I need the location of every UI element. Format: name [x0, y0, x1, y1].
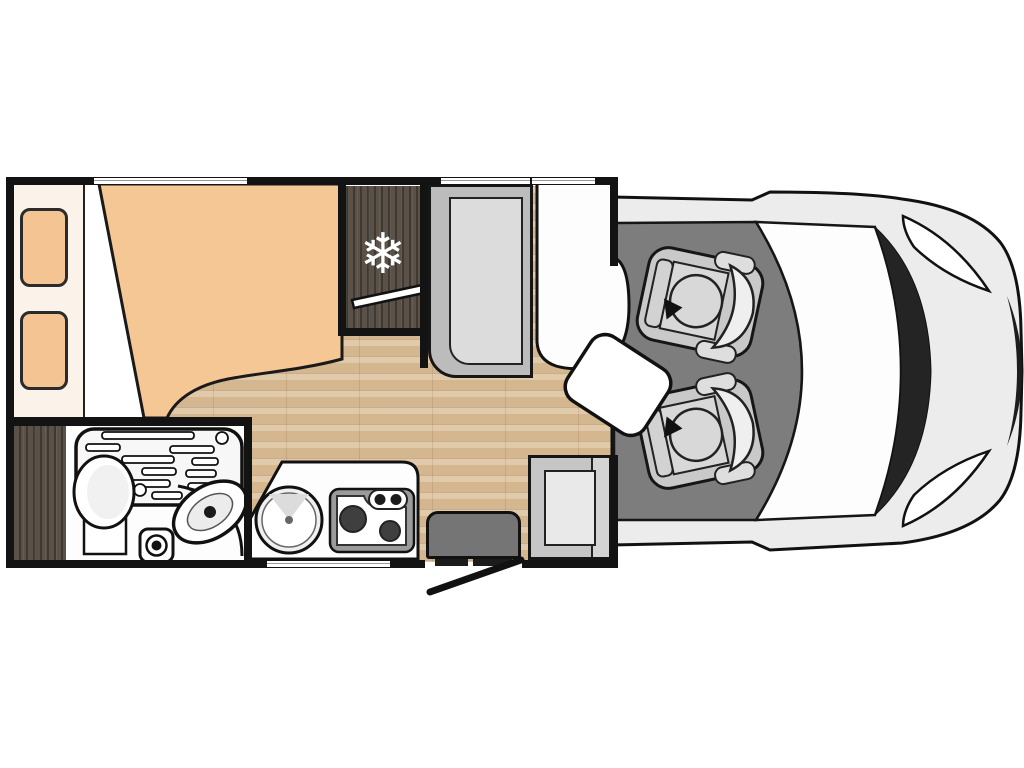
floorplan-canvas: ❄: [0, 0, 1024, 768]
entry-door-leaf: [430, 560, 521, 592]
overlay-layer: [0, 0, 1024, 768]
dinette-table: [559, 328, 678, 442]
